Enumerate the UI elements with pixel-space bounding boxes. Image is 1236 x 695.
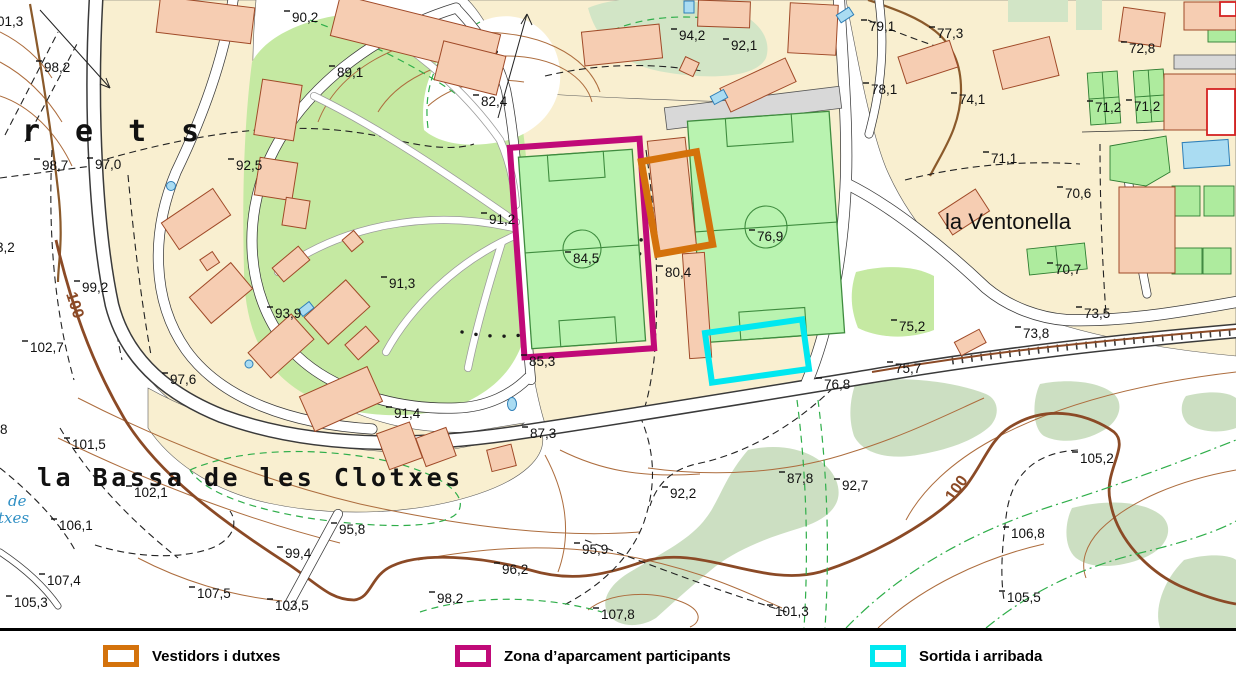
spot-elevation-label: 92,5 (236, 158, 262, 173)
spot-elevation-label: 105,5 (1007, 590, 1041, 605)
spot-elevation-label: 101,5 (72, 437, 106, 452)
legend-item-aparcament: Zona d’aparcament participants (455, 645, 731, 667)
spot-elevation-label: 98,2 (437, 591, 463, 606)
legend: Vestidors i dutxes Zona d’aparcament par… (0, 631, 1236, 695)
spot-elevation-label: 70,6 (1065, 186, 1091, 201)
gray-strip (1174, 55, 1236, 69)
place-name-rets: rets (22, 114, 234, 149)
spot-elevation-label: 91,3 (389, 276, 415, 291)
spot-elevation-label: 105,2 (1080, 451, 1114, 466)
place-name-ventonella: la Ventonella (945, 209, 1072, 234)
spot-elevation-label: 78,1 (871, 82, 897, 97)
spot-elevation-label: 87,3 (530, 426, 556, 441)
spot-elevation-label: 92,2 (670, 486, 696, 501)
water-name-fragment: txes (0, 509, 29, 527)
spot-elevation-label: 95,9 (582, 542, 608, 557)
map-canvas: rets la Bassa de les Clotxes la Ventonel… (0, 0, 1236, 631)
sortida-legend-swatch (870, 645, 906, 667)
spot-elevation-label: 107,8 (601, 607, 635, 622)
map-svg: rets la Bassa de les Clotxes la Ventonel… (0, 0, 1236, 628)
spot-elevation-label: 72,8 (1129, 41, 1155, 56)
spot-elevation-label: 73,5 (1084, 306, 1110, 321)
spot-elevation-label: 98,7 (42, 158, 68, 173)
spot-elevation-label: 95,8 (339, 522, 365, 537)
spot-elevation-label: 90,2 (292, 10, 318, 25)
map-handout-page: rets la Bassa de les Clotxes la Ventonel… (0, 0, 1236, 695)
legend-item-sortida: Sortida i arribada (870, 645, 1042, 667)
legend-item-vestidors: Vestidors i dutxes (103, 645, 280, 667)
spot-elevation-label: 71,2 (1134, 99, 1160, 114)
spot-elevation-label: 102,7 (30, 340, 64, 355)
legend-label: Zona d’aparcament participants (504, 648, 731, 665)
spot-elevation-label: 71,2 (1095, 100, 1121, 115)
swimming-pool (1182, 139, 1230, 168)
spot-elevation-label: 97,6 (170, 372, 196, 387)
spot-elevation-label: 99,2 (82, 280, 108, 295)
spot-elevation-label: 106,8 (1011, 526, 1045, 541)
spot-elevation-label: 94,2 (679, 28, 705, 43)
spot-elevation-label: 105,3 (14, 595, 48, 610)
spot-elevation-label: 102,1 (134, 485, 168, 500)
spot-elevation-label: 73,8 (1023, 326, 1049, 341)
spot-elevation-label: 96,2 (502, 562, 528, 577)
spot-elevation-label: 79,1 (869, 19, 895, 34)
spot-elevation-label: 70,7 (1055, 262, 1081, 277)
place-name-bassa: la Bassa de les Clotxes (37, 463, 464, 492)
legend-label: Sortida i arribada (919, 648, 1042, 665)
spot-elevation-label: 85,3 (529, 354, 555, 369)
spot-elevation-label: 76,8 (824, 377, 850, 392)
legend-label: Vestidors i dutxes (152, 648, 280, 665)
spot-elevation-label: 98,2 (44, 60, 70, 75)
spot-elevation-label: 71,1 (991, 151, 1017, 166)
spot-elevation-label: 74,1 (959, 92, 985, 107)
spot-elevation-label: 91,4 (394, 406, 421, 421)
spot-elevation-label: 93,9 (275, 306, 301, 321)
spot-elevation-label: 84,5 (573, 251, 599, 266)
spot-elevation-label: 99,4 (285, 546, 312, 561)
spot-elevation-label: 77,3 (937, 26, 963, 41)
red-outline-building (1207, 89, 1235, 135)
spot-elevation-label: 92,1 (731, 38, 757, 53)
spot-elevation-label: 107,5 (197, 586, 231, 601)
spot-elevation-label: 101,3 (775, 604, 809, 619)
spot-elevation-label: 8 (0, 422, 8, 437)
spot-elevation-label: 92,7 (842, 478, 868, 493)
spot-elevation-label: 103,5 (275, 598, 309, 613)
spot-elevation-label: 106,1 (59, 518, 93, 533)
spot-elevation-label: 87,8 (787, 471, 813, 486)
spot-elevation-label: 76,9 (757, 229, 783, 244)
spot-elevation-label: 107,4 (47, 573, 81, 588)
aparcament-legend-swatch (455, 645, 491, 667)
spot-elevation-label: 80,4 (665, 265, 692, 280)
spot-elevation-label: 01,3 (0, 14, 23, 29)
spot-elevation-label: 3,2 (0, 240, 15, 255)
red-outline-building (1220, 2, 1236, 16)
spot-elevation-label: 75,7 (895, 361, 921, 376)
spot-elevation-label: 75,2 (899, 319, 925, 334)
spot-elevation-label: 89,1 (337, 65, 363, 80)
water-name-fragment: de (8, 492, 27, 510)
spot-elevation-label: 97,0 (95, 157, 121, 172)
football-field-left (518, 149, 645, 348)
spot-elevation-label: 91,2 (489, 212, 515, 227)
vestidors-legend-swatch (103, 645, 139, 667)
spot-elevation-label: 82,4 (481, 94, 508, 109)
